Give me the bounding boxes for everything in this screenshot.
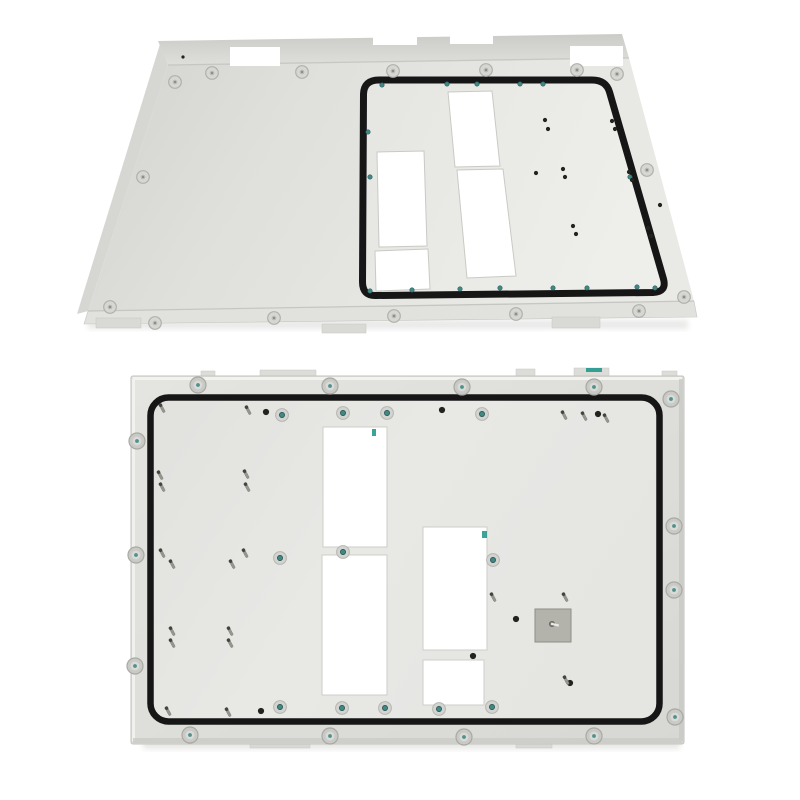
panel-cutout — [375, 249, 430, 291]
bottom-panel-gasket — [151, 398, 660, 722]
screw-center — [646, 169, 648, 171]
hole — [263, 409, 269, 415]
screw-head — [456, 729, 472, 745]
hole — [561, 167, 565, 171]
screw-head — [476, 408, 489, 421]
screw-center — [462, 735, 466, 739]
hole — [439, 407, 445, 413]
panels-photo-illustration — [0, 0, 800, 800]
photo-canvas — [0, 0, 800, 800]
flange-notch — [450, 32, 493, 44]
hole — [534, 171, 538, 175]
screw-head — [433, 703, 446, 716]
screw-center — [328, 384, 332, 388]
hole — [613, 127, 617, 131]
screw-center — [436, 706, 441, 711]
screw-center — [592, 734, 596, 738]
edge-highlight-top — [133, 377, 682, 380]
screw-head — [190, 377, 206, 393]
screw-head — [182, 727, 198, 743]
screw-center — [277, 555, 282, 560]
threaded-hole — [551, 286, 555, 290]
hole — [563, 175, 567, 179]
threaded-hole — [475, 82, 479, 86]
screw-head — [169, 76, 182, 89]
screw-center — [134, 553, 138, 557]
screw-head — [322, 728, 338, 744]
screw-head — [586, 379, 602, 395]
screw-head — [381, 407, 394, 420]
bottom-panel-group — [127, 368, 684, 749]
hole — [627, 170, 631, 174]
threaded-hole — [635, 285, 639, 289]
screw-head — [137, 171, 150, 184]
screw-head — [337, 546, 350, 559]
screw-center — [196, 383, 200, 387]
screw-head — [510, 308, 523, 321]
hole — [513, 616, 519, 622]
screw-head — [129, 433, 145, 449]
screw-head — [633, 305, 646, 318]
screw-center — [154, 322, 156, 324]
screw-center — [485, 69, 487, 71]
screw-center — [616, 73, 618, 75]
screw-head — [128, 547, 144, 563]
screw-center — [339, 705, 344, 710]
screw-head — [641, 164, 654, 177]
screw-center — [328, 734, 332, 738]
hole — [595, 411, 601, 417]
screw-center — [672, 588, 676, 592]
screw-center — [301, 71, 303, 73]
hole — [571, 224, 575, 228]
screw-head — [666, 582, 682, 598]
screw-center — [211, 72, 213, 74]
screw-head — [678, 291, 691, 304]
screw-center — [273, 317, 275, 319]
hole — [630, 178, 634, 182]
screw-head — [666, 518, 682, 534]
hole — [470, 653, 476, 659]
screw-head — [480, 64, 493, 77]
threaded-hole — [653, 286, 657, 290]
screw-center — [638, 310, 640, 312]
screw-center — [576, 69, 578, 71]
screw-center — [460, 385, 464, 389]
screw-center — [672, 524, 676, 528]
screw-center — [393, 315, 395, 317]
hole — [574, 232, 578, 236]
threaded-hole — [368, 175, 372, 179]
screw-head — [322, 378, 338, 394]
compression-artifact — [482, 531, 487, 538]
hole — [610, 119, 614, 123]
panel-cutout — [448, 91, 500, 167]
flange-notch — [373, 33, 417, 45]
screw-head — [454, 379, 470, 395]
hole — [658, 203, 662, 207]
hole — [546, 127, 550, 131]
panel-cutout — [377, 151, 427, 247]
threaded-hole — [366, 130, 370, 134]
threaded-hole — [445, 82, 449, 86]
panel-cutout — [323, 427, 387, 547]
screw-center — [340, 549, 345, 554]
screw-head — [388, 310, 401, 323]
screw-center — [188, 733, 192, 737]
screw-head — [586, 728, 602, 744]
compression-artifact — [372, 429, 376, 436]
screw-center — [392, 70, 394, 72]
threaded-hole — [518, 82, 522, 86]
panel-cutout — [423, 527, 487, 650]
screw-center — [490, 557, 495, 562]
screw-head — [387, 65, 400, 78]
screw-center — [174, 81, 176, 83]
screw-center — [277, 704, 282, 709]
screw-center — [384, 410, 389, 415]
screw-center — [669, 397, 673, 401]
edge-shade-right — [679, 379, 683, 741]
panel-cutout — [322, 555, 387, 695]
flange-cutout — [570, 46, 623, 66]
top-panel-foot-tab — [322, 324, 366, 333]
threaded-hole — [410, 288, 414, 292]
threaded-hole — [380, 83, 384, 87]
hole — [543, 118, 547, 122]
screw-head — [268, 312, 281, 325]
hole — [258, 708, 264, 714]
threaded-hole — [368, 289, 372, 293]
screw-center — [489, 704, 494, 709]
threaded-hole — [585, 286, 589, 290]
hole — [646, 226, 650, 230]
screw-head — [379, 702, 392, 715]
hole — [181, 55, 184, 58]
screw-head — [206, 67, 219, 80]
screw-head — [276, 409, 289, 422]
screw-center — [279, 412, 284, 417]
top-panel-foot-tab — [552, 317, 600, 328]
screw-head — [149, 317, 162, 330]
compression-artifact — [586, 368, 602, 372]
screw-center — [109, 306, 111, 308]
screw-center — [142, 176, 144, 178]
screw-head — [127, 658, 143, 674]
screw-head — [486, 701, 499, 714]
screw-head — [667, 709, 683, 725]
screw-center — [673, 715, 677, 719]
flange-cutout — [230, 47, 280, 66]
threaded-hole — [458, 287, 462, 291]
threaded-hole — [498, 286, 502, 290]
screw-head — [274, 701, 287, 714]
screw-head — [571, 64, 584, 77]
hole — [649, 234, 653, 238]
threaded-hole — [541, 82, 545, 86]
top-panel-foot-tab — [96, 318, 141, 328]
screw-head — [663, 391, 679, 407]
screw-head — [611, 68, 624, 81]
screw-center — [382, 705, 387, 710]
screw-center — [683, 296, 685, 298]
screw-center — [133, 664, 137, 668]
screw-center — [592, 385, 596, 389]
screw-center — [515, 313, 517, 315]
screw-head — [296, 66, 309, 79]
screw-center — [479, 411, 484, 416]
screw-head — [487, 554, 500, 567]
top-panel-group — [77, 32, 697, 333]
screw-head — [274, 552, 287, 565]
panel-cutout — [423, 660, 484, 705]
screw-head — [104, 301, 117, 314]
screw-head — [336, 702, 349, 715]
screw-center — [340, 410, 345, 415]
screw-center — [135, 439, 139, 443]
screw-head — [337, 407, 350, 420]
